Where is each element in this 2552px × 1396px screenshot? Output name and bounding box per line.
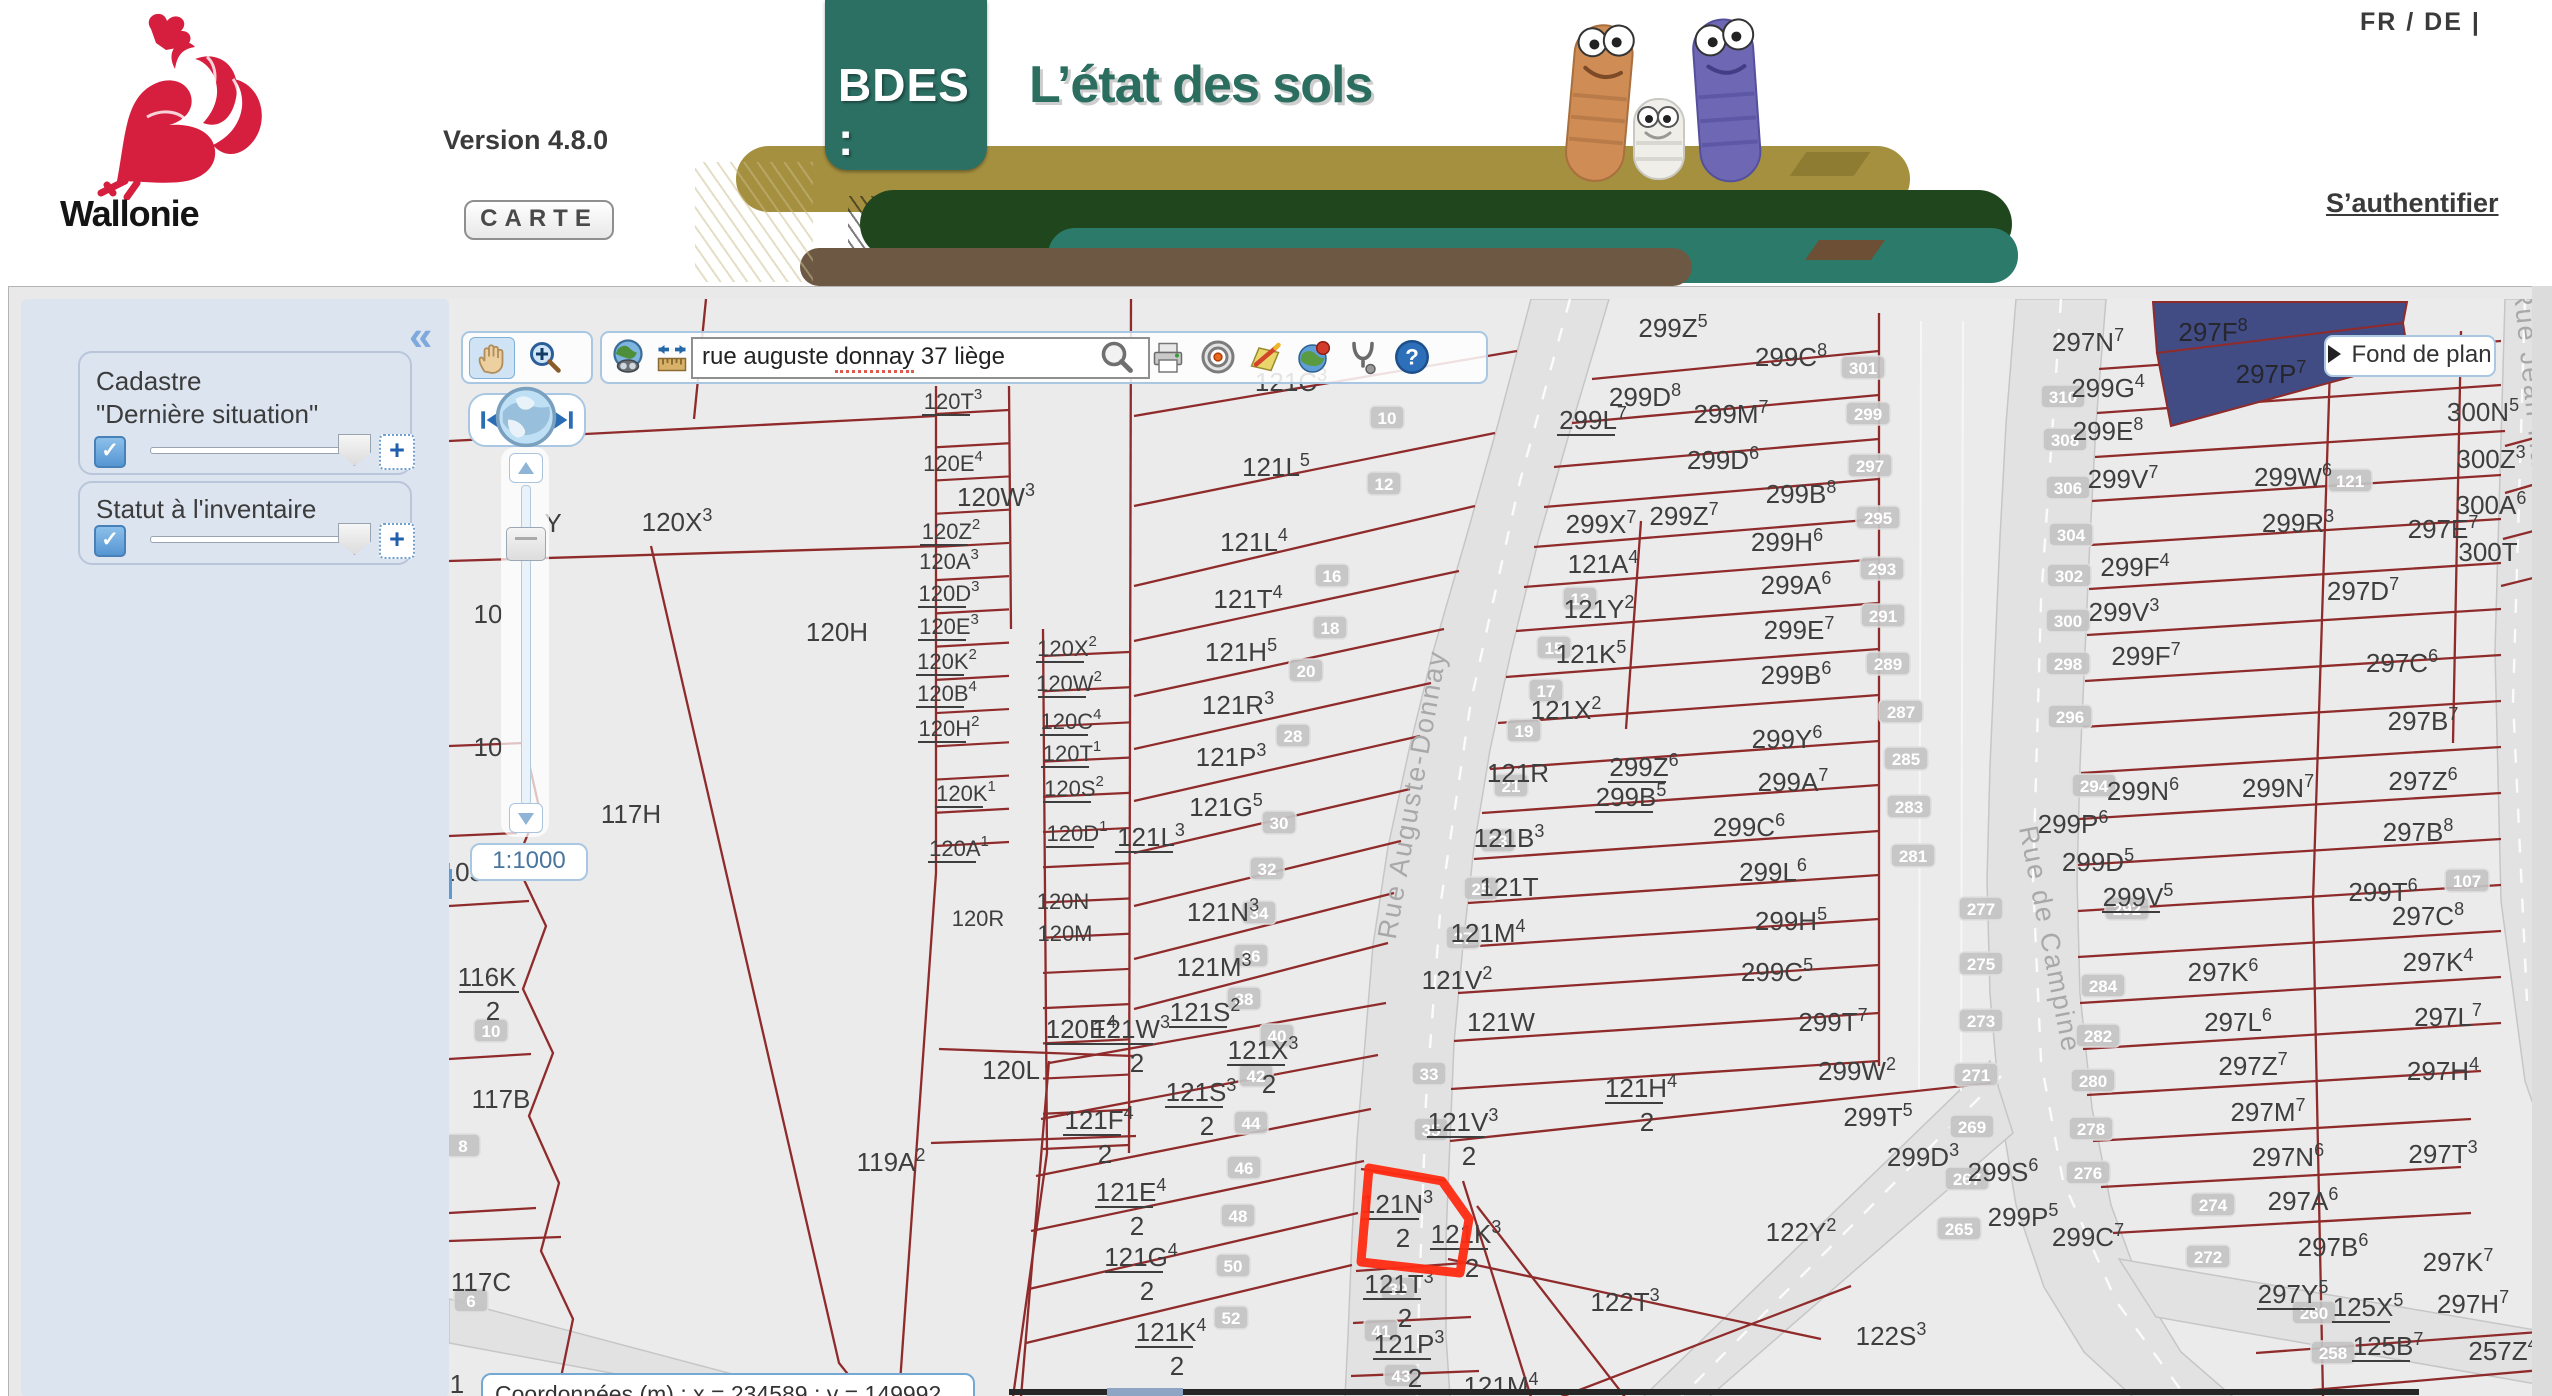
svg-text:121R: 121R xyxy=(1487,758,1549,788)
svg-text:120K1: 120K1 xyxy=(936,778,996,806)
svg-text:120H: 120H xyxy=(806,617,868,647)
svg-text:296: 296 xyxy=(2056,708,2084,727)
content-wrapper: « Cadastre "Dernière situation" ✓ + Stat… xyxy=(8,286,2548,1396)
svg-text:2: 2 xyxy=(1098,1139,1112,1169)
svg-text:299A6: 299A6 xyxy=(1761,568,1832,600)
bdes-app: Wallonie Version 4.8.0 CARTE BDES : L’ét… xyxy=(0,0,2552,1396)
svg-text:298: 298 xyxy=(2054,655,2082,674)
svg-text:299N7: 299N7 xyxy=(2242,771,2314,803)
svg-text:121V2: 121V2 xyxy=(1422,963,1493,995)
svg-text:274: 274 xyxy=(2199,1196,2228,1215)
svg-text:287: 287 xyxy=(1887,703,1915,722)
svg-text:121H4: 121H4 xyxy=(1605,1071,1677,1103)
svg-text:125X5: 125X5 xyxy=(2333,1290,2404,1322)
svg-text:283: 283 xyxy=(1895,798,1923,817)
zoom-tool-button[interactable] xyxy=(521,337,565,377)
svg-text:120L: 120L xyxy=(982,1055,1040,1085)
svg-text:297C8: 297C8 xyxy=(2392,899,2464,931)
svg-text:121P3: 121P3 xyxy=(1196,740,1267,772)
svg-text:2: 2 xyxy=(1140,1276,1154,1306)
svg-text:121L4: 121L4 xyxy=(1220,525,1288,557)
svg-text:120R: 120R xyxy=(952,906,1005,931)
svg-text:121E4: 121E4 xyxy=(1096,1175,1167,1207)
svg-text:120D3: 120D3 xyxy=(919,578,980,606)
svg-text:121X3: 121X3 xyxy=(1228,1033,1299,1065)
svg-text:121V3: 121V3 xyxy=(1428,1105,1499,1137)
svg-text:120D1: 120D1 xyxy=(1047,818,1108,846)
svg-text:120X2: 120X2 xyxy=(1037,633,1097,661)
svg-text:297T3: 297T3 xyxy=(2408,1137,2477,1169)
toolbar-main-group: rue auguste donnay 37 liège xyxy=(600,331,1488,384)
svg-text:2: 2 xyxy=(1130,1048,1144,1078)
svg-text:107: 107 xyxy=(2453,872,2481,891)
svg-text:280: 280 xyxy=(2079,1072,2107,1091)
svg-text:2: 2 xyxy=(1396,1223,1410,1253)
svg-text:120Z2: 120Z2 xyxy=(922,516,981,544)
layer-title: Cadastre "Dernière situation" xyxy=(96,365,318,431)
worm-purple xyxy=(1691,17,1763,183)
svg-text:297A6: 297A6 xyxy=(2268,1184,2339,1216)
clipped-footer-text xyxy=(1009,1389,2419,1395)
opacity-slider-statut[interactable] xyxy=(150,536,370,543)
svg-text:299S6: 299S6 xyxy=(1968,1155,2039,1187)
svg-text:299H6: 299H6 xyxy=(1751,525,1823,557)
svg-text:299L7: 299L7 xyxy=(1559,403,1627,435)
svg-text:291: 291 xyxy=(1869,607,1897,626)
zoom-slider-thumb[interactable] xyxy=(506,527,546,561)
svg-text:299L6: 299L6 xyxy=(1739,855,1807,887)
svg-text:120E4: 120E4 xyxy=(923,448,983,476)
clipped-ui-fragment xyxy=(1107,1388,1183,1396)
svg-text:2: 2 xyxy=(1640,1107,1654,1137)
expand-layer-button[interactable]: + xyxy=(379,434,415,470)
svg-text:297M7: 297M7 xyxy=(2230,1095,2305,1127)
svg-text:299T7: 299T7 xyxy=(1798,1005,1867,1037)
zoom-in-icon xyxy=(527,339,563,375)
svg-text:121L3: 121L3 xyxy=(1117,820,1185,852)
svg-text:299: 299 xyxy=(1854,405,1882,424)
svg-text:120H2: 120H2 xyxy=(919,713,980,741)
zoom-slider xyxy=(501,447,549,837)
svg-text:16: 16 xyxy=(1323,567,1342,586)
worm-white xyxy=(1634,99,1684,179)
svg-text:299E8: 299E8 xyxy=(2073,414,2144,446)
svg-text:44: 44 xyxy=(1242,1114,1261,1133)
version-label: Version 4.8.0 xyxy=(443,125,608,156)
svg-text:265: 265 xyxy=(1945,1220,1973,1239)
cadastre-map-svg[interactable]: 1012161820283032343638404244464850521315… xyxy=(449,299,2541,1396)
svg-text:8: 8 xyxy=(458,1137,467,1156)
svg-text:294: 294 xyxy=(2080,777,2109,796)
svg-text:121M3: 121M3 xyxy=(1176,950,1251,982)
layer-panel-cadastre: Cadastre "Dernière situation" ✓ + xyxy=(78,351,412,475)
svg-text:299X7: 299X7 xyxy=(1566,507,1637,539)
svg-text:121K5: 121K5 xyxy=(1556,637,1627,669)
svg-text:28: 28 xyxy=(1284,727,1303,746)
svg-text:299W6: 299W6 xyxy=(2254,460,2332,492)
svg-text:297N7: 297N7 xyxy=(2052,325,2124,357)
layer-checkbox-cadastre[interactable]: ✓ xyxy=(94,436,126,468)
locate-globe-icon[interactable] xyxy=(610,339,646,375)
svg-text:297K6: 297K6 xyxy=(2188,955,2259,987)
svg-text:297H4: 297H4 xyxy=(2407,1054,2479,1086)
svg-text:299Y6: 299Y6 xyxy=(1752,722,1823,754)
svg-text:121L5: 121L5 xyxy=(1242,450,1310,482)
svg-text:46: 46 xyxy=(1235,1159,1254,1178)
svg-text:122Y2: 122Y2 xyxy=(1766,1215,1837,1247)
stethoscope-icon[interactable] xyxy=(1345,339,1381,375)
svg-text:121T: 121T xyxy=(1479,872,1538,902)
scale-indicator: 1:1000 xyxy=(470,843,588,881)
svg-text:52: 52 xyxy=(1222,1309,1241,1328)
opacity-slider-handle[interactable] xyxy=(338,434,371,466)
svg-text:297B6: 297B6 xyxy=(2298,1230,2369,1262)
svg-text:299C7: 299C7 xyxy=(2052,1220,2124,1252)
svg-text:300: 300 xyxy=(2054,612,2082,631)
svg-text:121W: 121W xyxy=(1467,1007,1535,1037)
svg-text:120S2: 120S2 xyxy=(1044,773,1104,801)
svg-text:120K2: 120K2 xyxy=(917,646,977,674)
zoom-out-step-button[interactable] xyxy=(509,803,543,833)
svg-text:297F8: 297F8 xyxy=(2178,315,2247,347)
svg-text:297Z6: 297Z6 xyxy=(2388,764,2457,796)
svg-text:299W2: 299W2 xyxy=(1818,1054,1896,1086)
svg-text:297P7: 297P7 xyxy=(2236,357,2307,389)
svg-text:120W2: 120W2 xyxy=(1036,668,1102,696)
svg-text:297N6: 297N6 xyxy=(2252,1140,2324,1172)
svg-text:297B7: 297B7 xyxy=(2388,704,2459,736)
svg-text:20: 20 xyxy=(1297,662,1316,681)
svg-text:121T4: 121T4 xyxy=(1213,582,1282,614)
center-target-icon[interactable] xyxy=(1200,339,1236,375)
svg-text:297L6: 297L6 xyxy=(2204,1005,2272,1037)
svg-text:117H: 117H xyxy=(601,799,661,829)
svg-text:120C4: 120C4 xyxy=(1041,706,1102,734)
svg-text:121H5: 121H5 xyxy=(1205,635,1277,667)
svg-text:2: 2 xyxy=(1262,1069,1276,1099)
svg-text:297: 297 xyxy=(1856,457,1884,476)
svg-text:295: 295 xyxy=(1864,509,1892,528)
opacity-slider-cadastre[interactable] xyxy=(150,447,370,454)
svg-text:297Z7: 297Z7 xyxy=(2218,1049,2287,1081)
svg-text:120E3: 120E3 xyxy=(919,611,979,639)
header: Wallonie Version 4.8.0 CARTE BDES : L’ét… xyxy=(0,0,2552,286)
svg-text:299V3: 299V3 xyxy=(2089,595,2160,627)
svg-text:300T: 300T xyxy=(2458,537,2517,567)
opacity-slider-handle[interactable] xyxy=(338,523,371,555)
layer-title: Statut à l'inventaire xyxy=(96,493,316,526)
svg-text:121B3: 121B3 xyxy=(1474,821,1545,853)
svg-text:282: 282 xyxy=(2084,1027,2112,1046)
svg-text:18: 18 xyxy=(1321,619,1340,638)
svg-text:271: 271 xyxy=(1962,1066,1990,1085)
svg-text:121N3: 121N3 xyxy=(1361,1187,1433,1219)
svg-text:302: 302 xyxy=(2055,567,2083,586)
basemap-button[interactable]: Fond de plan xyxy=(2324,335,2496,377)
svg-text:281: 281 xyxy=(1899,847,1927,866)
right-gutter xyxy=(2532,286,2552,1396)
search-input[interactable]: rue auguste donnay 37 liège xyxy=(691,337,1150,379)
svg-text:297K4: 297K4 xyxy=(2403,945,2474,977)
svg-text:121G4: 121G4 xyxy=(1104,1240,1178,1272)
layer-panel-statut: Statut à l'inventaire ✓ + xyxy=(78,481,412,565)
svg-text:299G4: 299G4 xyxy=(2071,371,2145,403)
svg-text:299R3: 299R3 xyxy=(2262,506,2334,538)
svg-text:299D6: 299D6 xyxy=(1687,443,1759,475)
svg-text:299C8: 299C8 xyxy=(1755,340,1827,372)
map-canvas[interactable]: 1012161820283032343638404244464850521315… xyxy=(449,299,2541,1396)
svg-text:297H7: 297H7 xyxy=(2437,1287,2509,1319)
svg-text:299C5: 299C5 xyxy=(1741,955,1813,987)
svg-text:50: 50 xyxy=(1224,1257,1243,1276)
svg-text:273: 273 xyxy=(1967,1012,1995,1031)
svg-text:117C: 117C xyxy=(451,1267,511,1297)
svg-text:299B6: 299B6 xyxy=(1761,658,1832,690)
focus-outline-fragment xyxy=(449,869,452,899)
worm-mascots xyxy=(1540,5,1820,183)
svg-text:2: 2 xyxy=(1462,1141,1476,1171)
help-icon[interactable]: ? xyxy=(1394,339,1430,375)
wallonie-wordmark: Wallonie xyxy=(60,193,199,235)
svg-text:120B4: 120B4 xyxy=(917,678,977,706)
svg-text:121A4: 121A4 xyxy=(1568,547,1639,579)
toolbar-nav-group xyxy=(461,331,593,384)
bdes-logo-text: BDES : xyxy=(838,58,978,166)
svg-text:12: 12 xyxy=(1375,475,1394,494)
svg-text:300A6: 300A6 xyxy=(2456,488,2527,520)
svg-text:120M: 120M xyxy=(1037,921,1092,946)
svg-text:2: 2 xyxy=(1200,1111,1214,1141)
svg-text:257Z4: 257Z4 xyxy=(2468,1334,2537,1366)
bdes-tagline: L’état des sols xyxy=(1029,55,1372,115)
svg-text:299P5: 299P5 xyxy=(1988,1200,2059,1232)
svg-text:297D7: 297D7 xyxy=(2327,574,2399,606)
svg-text:258: 258 xyxy=(2319,1344,2347,1363)
svg-text:121S3: 121S3 xyxy=(1166,1075,1237,1107)
wallonie-rooster-logo xyxy=(55,5,270,200)
layers-sidebar: « Cadastre "Dernière situation" ✓ + Stat… xyxy=(21,299,449,1396)
svg-text:300N5: 300N5 xyxy=(2447,395,2519,427)
coordinates-readout: Coordonnées (m) : x = 234589 ; y = 14999… xyxy=(481,1373,975,1396)
svg-text:299A7: 299A7 xyxy=(1758,765,1829,797)
svg-text:299E7: 299E7 xyxy=(1764,613,1835,645)
svg-text:299B5: 299B5 xyxy=(1596,780,1667,812)
svg-text:10: 10 xyxy=(474,599,503,629)
svg-text:30: 30 xyxy=(1270,814,1289,833)
svg-text:2: 2 xyxy=(1170,1351,1184,1381)
svg-text:285: 285 xyxy=(1892,750,1920,769)
banner-bar-brown xyxy=(800,248,1692,286)
pan-tool-button[interactable] xyxy=(469,337,515,379)
svg-text:299B8: 299B8 xyxy=(1766,477,1837,509)
sidebar-collapse-icon[interactable]: « xyxy=(409,321,432,351)
svg-text:300Z3: 300Z3 xyxy=(2456,442,2525,474)
svg-text:2: 2 xyxy=(486,996,500,1026)
svg-text:284: 284 xyxy=(2089,977,2118,996)
banner-deco-brown xyxy=(1805,240,1885,260)
worm-orange xyxy=(1564,22,1635,183)
globe-layers-icon[interactable] xyxy=(1296,339,1332,375)
svg-text:120A1: 120A1 xyxy=(929,833,989,861)
svg-text:120N: 120N xyxy=(1037,889,1090,914)
svg-text:125B7: 125B7 xyxy=(2353,1329,2424,1361)
svg-text:299V7: 299V7 xyxy=(2088,462,2159,494)
svg-text:304: 304 xyxy=(2057,526,2086,545)
carte-button[interactable]: CARTE xyxy=(464,200,614,240)
svg-text:120W3: 120W3 xyxy=(957,480,1035,512)
svg-text:299Z7: 299Z7 xyxy=(1649,499,1718,531)
svg-text:119A2: 119A2 xyxy=(857,1145,926,1177)
svg-text:10: 10 xyxy=(474,732,503,762)
svg-text:121G5: 121G5 xyxy=(1189,790,1263,822)
print-icon[interactable] xyxy=(1150,339,1186,375)
svg-text:121X2: 121X2 xyxy=(1531,693,1602,725)
svg-text:299D3: 299D3 xyxy=(1887,1140,1959,1172)
svg-text:299F7: 299F7 xyxy=(2111,639,2180,671)
svg-text:2: 2 xyxy=(1130,1211,1144,1241)
svg-text:297L7: 297L7 xyxy=(2414,1000,2482,1032)
svg-text:299V5: 299V5 xyxy=(2103,880,2174,912)
svg-text:289: 289 xyxy=(1874,655,1902,674)
svg-text:277: 277 xyxy=(1967,900,1995,919)
svg-text:297B8: 297B8 xyxy=(2383,815,2454,847)
svg-text:297Y5: 297Y5 xyxy=(2258,1277,2329,1309)
svg-text:121K4: 121K4 xyxy=(1136,1315,1207,1347)
expand-layer-button[interactable]: + xyxy=(379,523,415,559)
svg-text:121W3: 121W3 xyxy=(1092,1012,1170,1044)
search-icon[interactable] xyxy=(1099,339,1135,375)
chevron-right-icon xyxy=(2328,345,2341,363)
svg-text:121: 121 xyxy=(2336,472,2364,491)
svg-text:120T1: 120T1 xyxy=(1043,738,1102,766)
zoom-in-step-button[interactable] xyxy=(509,453,543,483)
language-switch[interactable]: FR / DE | xyxy=(2360,8,2481,37)
svg-text:297C6: 297C6 xyxy=(2366,646,2438,678)
svg-text:272: 272 xyxy=(2194,1248,2222,1267)
svg-text:?: ? xyxy=(1405,345,1419,370)
svg-text:121N3: 121N3 xyxy=(1187,895,1259,927)
svg-text:120T3: 120T3 xyxy=(924,386,983,414)
svg-text:301: 301 xyxy=(1849,359,1877,378)
svg-text:297K7: 297K7 xyxy=(2423,1245,2494,1277)
svg-text:1: 1 xyxy=(450,1369,464,1396)
login-link[interactable]: S’authentifier xyxy=(2326,188,2499,219)
banner-pinstripes xyxy=(695,162,813,282)
pan-hand-icon xyxy=(474,340,510,376)
svg-text:299C6: 299C6 xyxy=(1713,810,1785,842)
svg-text:121P3: 121P3 xyxy=(1374,1327,1445,1359)
svg-text:10: 10 xyxy=(1378,409,1397,428)
draw-sketch-icon[interactable] xyxy=(1247,339,1283,375)
measure-icon[interactable] xyxy=(654,339,690,375)
svg-text:299Z5: 299Z5 xyxy=(1638,311,1707,343)
svg-text:299D5: 299D5 xyxy=(2062,845,2134,877)
svg-text:306: 306 xyxy=(2054,479,2082,498)
svg-text:121S2: 121S2 xyxy=(1170,995,1241,1027)
svg-text:32: 32 xyxy=(1258,860,1277,879)
svg-text:299N6: 299N6 xyxy=(2107,774,2179,806)
svg-text:275: 275 xyxy=(1967,955,1995,974)
svg-text:276: 276 xyxy=(2074,1164,2102,1183)
world-extent-globe-icon[interactable] xyxy=(495,386,557,448)
svg-text:299F4: 299F4 xyxy=(2100,550,2169,582)
svg-text:33: 33 xyxy=(1420,1065,1439,1084)
svg-text:121R3: 121R3 xyxy=(1202,688,1274,720)
svg-text:116K: 116K xyxy=(458,962,517,992)
svg-text:121F4: 121F4 xyxy=(1064,1103,1133,1135)
svg-text:278: 278 xyxy=(2077,1120,2105,1139)
svg-text:117B: 117B xyxy=(472,1084,531,1114)
svg-text:293: 293 xyxy=(1868,560,1896,579)
svg-text:121M4: 121M4 xyxy=(1450,916,1525,948)
svg-text:299Z6: 299Z6 xyxy=(1609,750,1678,782)
svg-text:299P6: 299P6 xyxy=(2038,807,2109,839)
svg-text:120A3: 120A3 xyxy=(919,546,979,574)
svg-text:299M7: 299M7 xyxy=(1693,397,1768,429)
svg-text:299T5: 299T5 xyxy=(1843,1100,1912,1132)
svg-text:122T3: 122T3 xyxy=(1590,1285,1659,1317)
svg-text:269: 269 xyxy=(1958,1118,1986,1137)
svg-text:299H5: 299H5 xyxy=(1755,904,1827,936)
layer-checkbox-statut[interactable]: ✓ xyxy=(94,525,126,557)
svg-text:120X3: 120X3 xyxy=(642,505,713,537)
svg-text:122S3: 122S3 xyxy=(1856,1319,1927,1351)
svg-text:121Y2: 121Y2 xyxy=(1564,592,1635,624)
svg-text:48: 48 xyxy=(1229,1207,1248,1226)
